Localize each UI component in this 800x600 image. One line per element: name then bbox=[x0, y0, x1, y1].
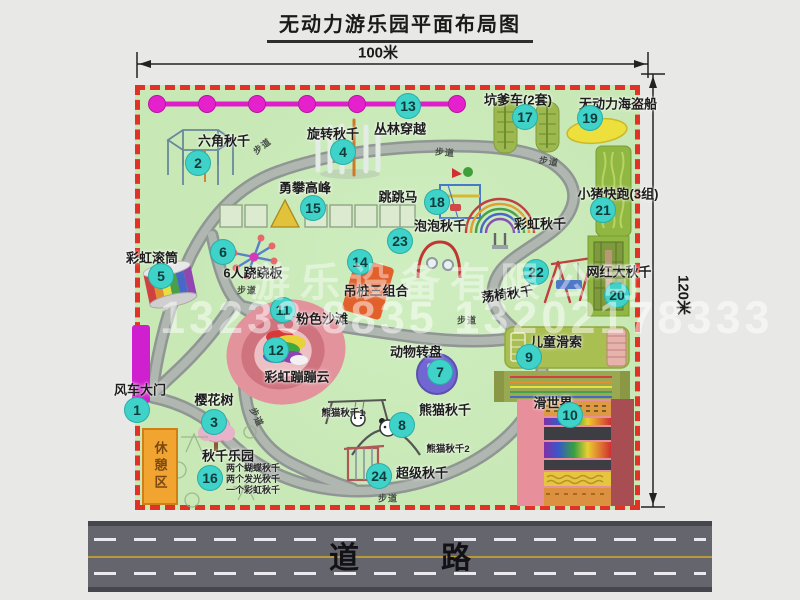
attraction-badge-19: 19 bbox=[577, 105, 603, 131]
bubble-swing-structure bbox=[418, 242, 460, 278]
attraction-badge-24: 24 bbox=[366, 463, 392, 489]
attraction-label-swing-park: 秋千乐园 bbox=[202, 446, 254, 465]
attraction-badge-17: 17 bbox=[512, 104, 538, 130]
walkway-label: 步道 bbox=[378, 492, 398, 505]
attraction-badge-18: 18 bbox=[424, 189, 450, 215]
panda-swing-2-label: 熊猫秋千2 bbox=[426, 441, 469, 455]
attraction-badge-13: 13 bbox=[395, 93, 421, 119]
attraction-label-panda-swing: 熊猫秋千 bbox=[419, 400, 471, 419]
attraction-badge-14: 14 bbox=[347, 249, 373, 275]
attraction-label-hanging-piles: 吊桩三组合 bbox=[343, 281, 408, 300]
attraction-label-windmill-gate: 风车大门 bbox=[114, 380, 166, 399]
walkway-label: 步道 bbox=[237, 284, 257, 297]
attraction-label-climbing-peak: 勇攀高峰 bbox=[279, 178, 331, 197]
dimension-right-label: 120米 bbox=[674, 271, 695, 319]
attraction-label-rotating-swing: 旋转秋千 bbox=[307, 124, 359, 143]
attraction-label-big-swing: 网红大秋千 bbox=[586, 262, 651, 281]
dimension-top-label: 100米 bbox=[354, 42, 402, 63]
attraction-label-jungle-crossing: 丛林穿越 bbox=[374, 119, 426, 138]
rest-area-label: 休憩区 bbox=[151, 441, 170, 492]
attraction-badge-8: 8 bbox=[389, 412, 415, 438]
page-title: 无动力游乐园平面布局图 bbox=[267, 8, 533, 43]
walkway-label: 步道 bbox=[434, 145, 455, 160]
attraction-badge-16: 16 bbox=[197, 465, 223, 491]
attraction-label-hexagon-swing: 六角秋千 bbox=[198, 131, 250, 150]
attraction-badge-22: 22 bbox=[523, 259, 549, 285]
attraction-badge-15: 15 bbox=[300, 195, 326, 221]
attraction-badge-21: 21 bbox=[590, 197, 616, 223]
panda-swing-1-label: 熊猫秋千1 bbox=[321, 405, 364, 419]
swing-park-note: 一个彩虹秋千 bbox=[226, 485, 280, 496]
attraction-badge-12: 12 bbox=[263, 337, 289, 363]
attraction-badge-7: 7 bbox=[427, 359, 453, 385]
attraction-badge-4: 4 bbox=[330, 139, 356, 165]
attraction-badge-5: 5 bbox=[148, 263, 174, 289]
attraction-badge-1: 1 bbox=[124, 397, 150, 423]
attraction-label-piggy-run: 小猪快跑(3组) bbox=[578, 184, 659, 203]
attraction-badge-3: 3 bbox=[201, 409, 227, 435]
attraction-label-seesaw: 6人跷跷板 bbox=[223, 263, 282, 282]
swing-park-note: 两个发光秋千 bbox=[226, 474, 280, 485]
swing-park-notes: 两个蝴蝶秋千 两个发光秋千 一个彩虹秋千 bbox=[226, 463, 280, 496]
attraction-badge-10: 10 bbox=[557, 402, 583, 428]
rest-area: 休憩区 bbox=[142, 428, 178, 505]
attraction-label-super-swing: 超级秋千 bbox=[396, 463, 448, 482]
attraction-badge-20: 20 bbox=[604, 282, 630, 308]
attraction-label-rainbow-roller: 彩虹滚筒 bbox=[126, 248, 178, 267]
playground-plan-page: { "title": "无动力游乐园平面布局图", "dimensions": … bbox=[0, 0, 800, 600]
attraction-badge-9: 9 bbox=[516, 344, 542, 370]
attraction-badge-23: 23 bbox=[387, 228, 413, 254]
swing-park-note: 两个蝴蝶秋千 bbox=[226, 463, 280, 474]
attraction-label-bubble-swing: 泡泡秋千 bbox=[414, 216, 466, 235]
attraction-badge-6: 6 bbox=[210, 239, 236, 265]
attraction-badge-11: 11 bbox=[270, 297, 296, 323]
attraction-label-jumping-horse: 跳跳马 bbox=[378, 187, 417, 206]
walkway-label: 步道 bbox=[457, 314, 477, 327]
road: 道 路 bbox=[88, 521, 712, 592]
attraction-badge-2: 2 bbox=[185, 150, 211, 176]
rainbow-swing-label: 彩虹秋千 bbox=[514, 214, 566, 233]
attraction-label-cherry-tree: 樱花树 bbox=[194, 390, 233, 409]
attraction-label-animal-turntable: 动物转盘 bbox=[390, 342, 442, 361]
attraction-label-rainbow-cloud: 彩虹蹦蹦云 bbox=[264, 367, 329, 386]
road-label: 道 路 bbox=[303, 533, 497, 577]
attraction-label-pink-beach: 粉色沙滩 bbox=[296, 309, 348, 328]
